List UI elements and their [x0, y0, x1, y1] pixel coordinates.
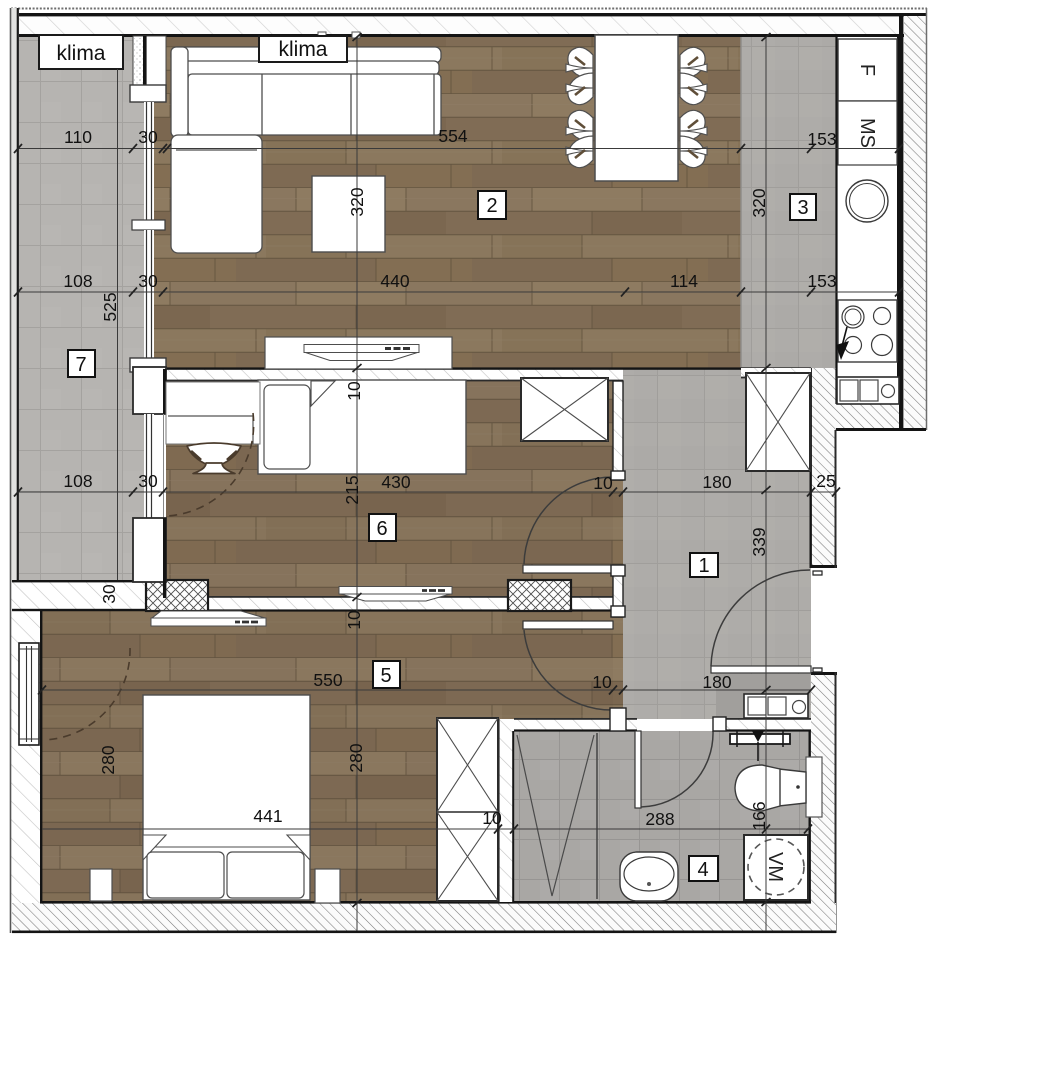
svg-text:430: 430	[381, 472, 410, 492]
svg-text:30: 30	[138, 271, 158, 291]
svg-text:30: 30	[99, 584, 119, 604]
svg-text:554: 554	[438, 126, 467, 146]
svg-text:2: 2	[486, 195, 497, 217]
svg-text:1: 1	[698, 555, 709, 577]
svg-text:VM: VM	[764, 852, 786, 882]
svg-text:5: 5	[380, 665, 391, 687]
svg-text:10: 10	[593, 473, 613, 493]
svg-text:30: 30	[138, 471, 158, 491]
svg-text:30: 30	[138, 127, 158, 147]
svg-text:klima: klima	[56, 42, 105, 65]
svg-text:108: 108	[63, 271, 92, 291]
svg-text:114: 114	[670, 271, 698, 291]
svg-text:153: 153	[807, 271, 836, 291]
svg-text:320: 320	[749, 188, 769, 217]
svg-text:288: 288	[645, 809, 674, 829]
svg-text:280: 280	[98, 745, 118, 774]
svg-text:339: 339	[749, 527, 769, 556]
svg-text:166: 166	[749, 801, 769, 830]
svg-text:180: 180	[702, 672, 731, 692]
svg-text:10: 10	[344, 381, 364, 401]
svg-text:440: 440	[380, 271, 409, 291]
svg-text:F: F	[856, 64, 878, 76]
svg-text:7: 7	[75, 354, 86, 376]
svg-text:525: 525	[100, 292, 120, 321]
svg-text:klima: klima	[278, 38, 327, 61]
svg-text:441: 441	[253, 806, 282, 826]
svg-text:110: 110	[64, 127, 92, 147]
svg-text:4: 4	[697, 859, 708, 881]
svg-text:10: 10	[482, 808, 502, 828]
svg-text:10: 10	[592, 672, 612, 692]
svg-text:180: 180	[702, 472, 731, 492]
svg-text:550: 550	[313, 670, 342, 690]
svg-text:MS: MS	[856, 118, 878, 148]
svg-text:320: 320	[347, 187, 367, 216]
svg-text:280: 280	[346, 743, 366, 772]
svg-text:10: 10	[344, 610, 364, 630]
svg-text:6: 6	[376, 518, 387, 540]
svg-text:25: 25	[816, 471, 835, 491]
svg-text:153: 153	[807, 129, 836, 149]
svg-text:108: 108	[63, 471, 92, 491]
svg-text:3: 3	[797, 197, 808, 219]
svg-text:215: 215	[342, 475, 362, 504]
